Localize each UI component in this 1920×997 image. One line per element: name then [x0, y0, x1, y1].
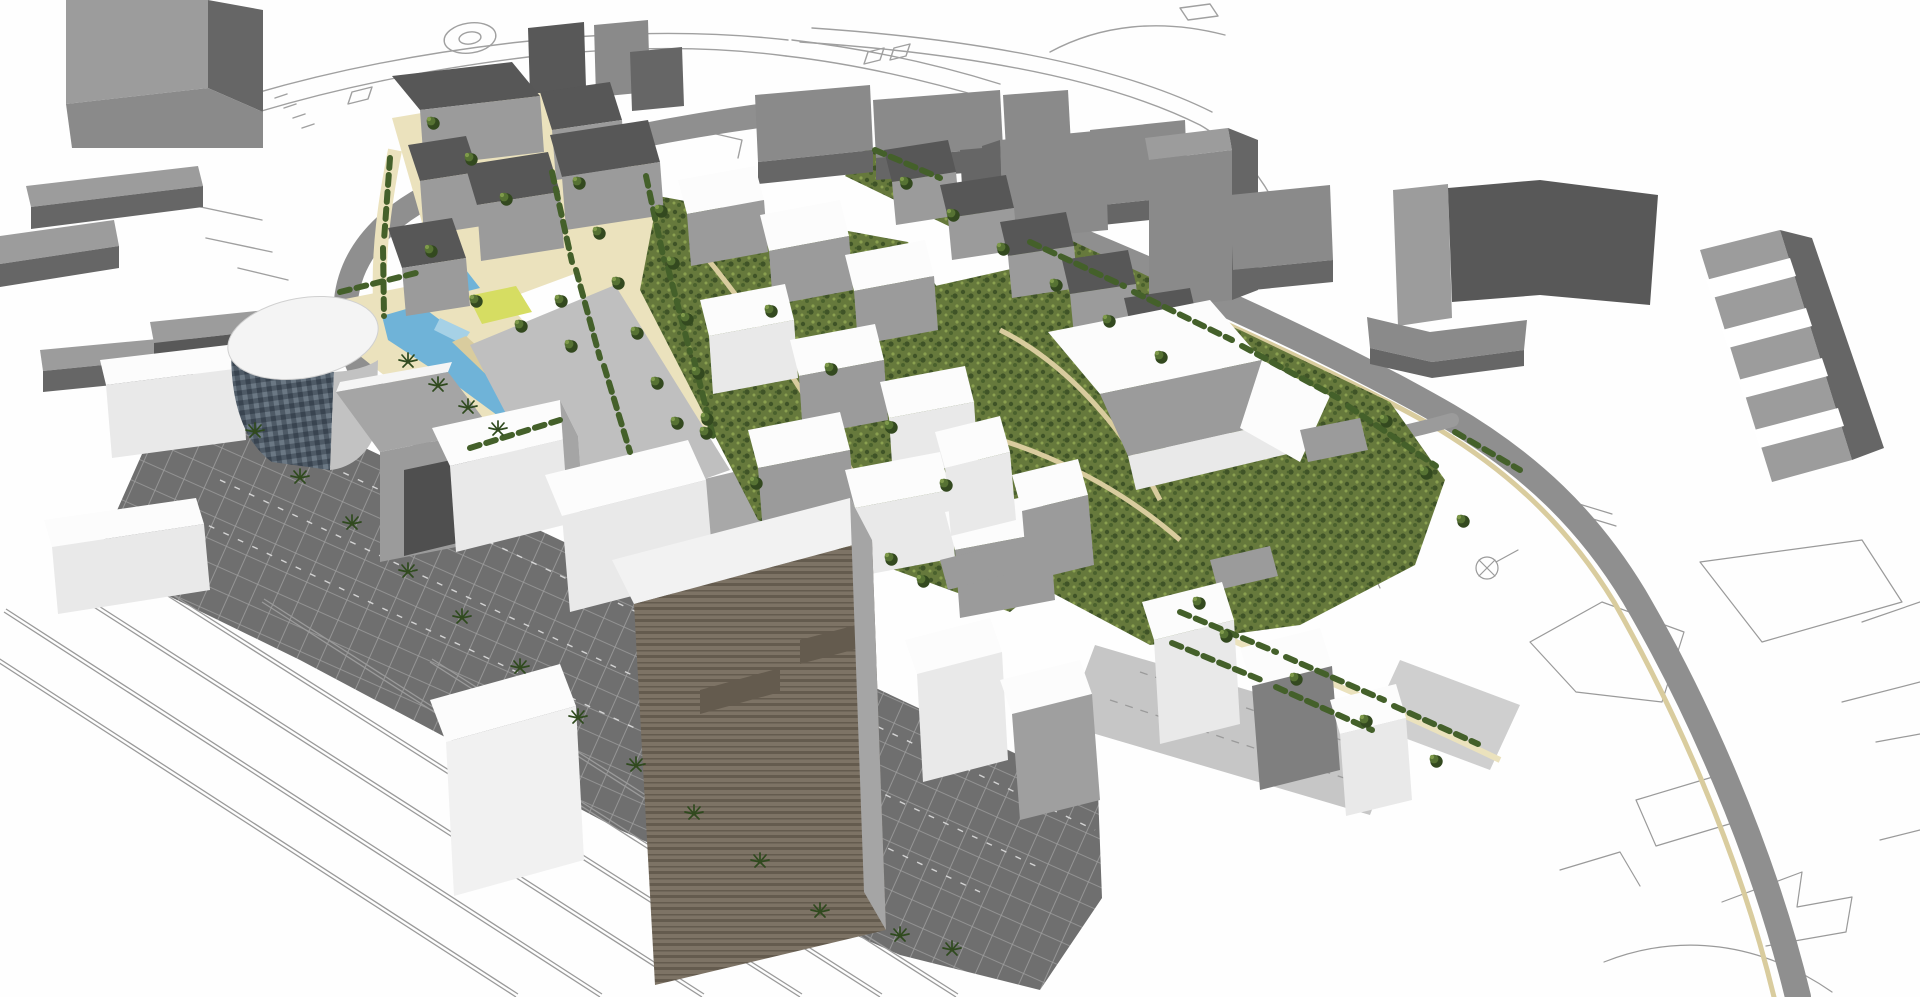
context-topleft-tower	[66, 0, 263, 148]
brown-slab-facade	[634, 540, 886, 985]
brown-glass-slab	[612, 498, 886, 985]
masterplan-render	[0, 0, 1920, 997]
scene-svg	[0, 0, 1920, 997]
